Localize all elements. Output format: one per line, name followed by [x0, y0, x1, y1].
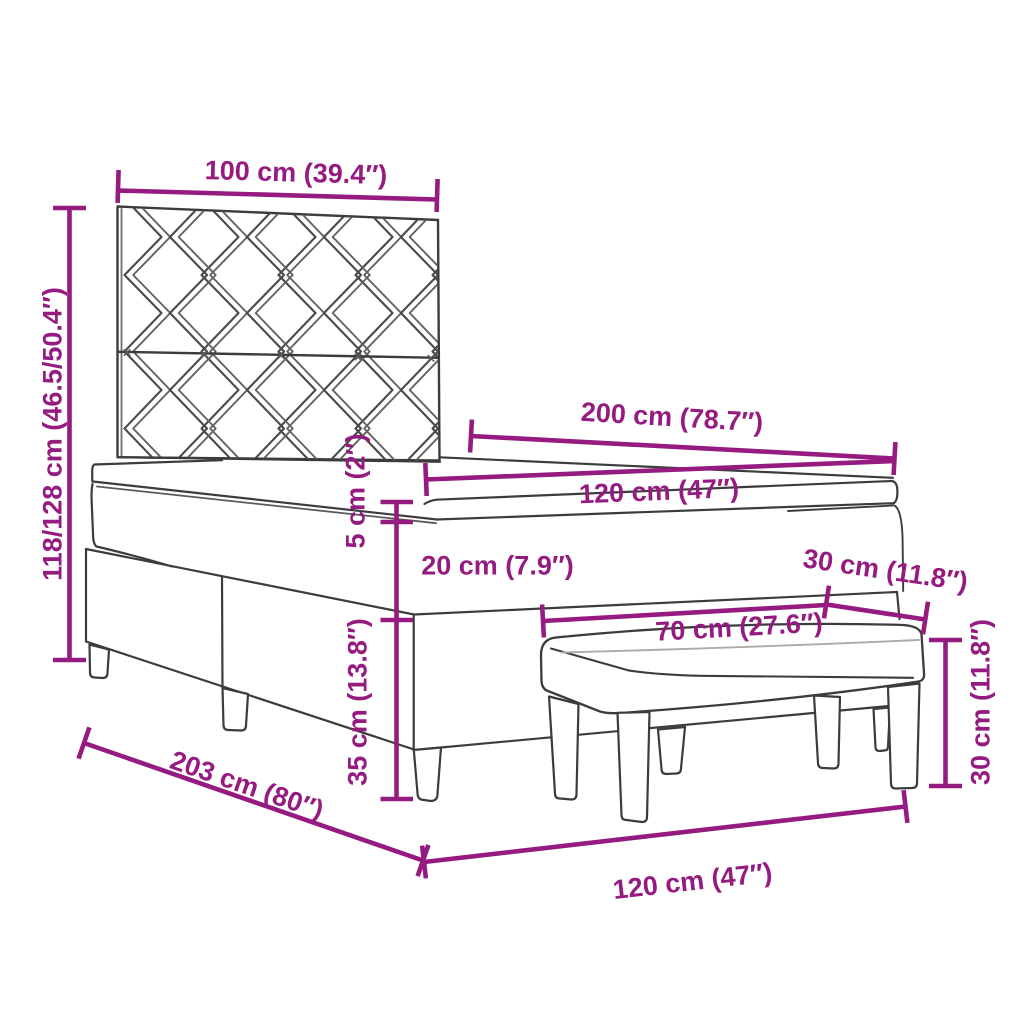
- svg-text:118/128 cm (46.5/50.4″): 118/128 cm (46.5/50.4″): [38, 287, 68, 581]
- svg-text:20 cm (7.9″): 20 cm (7.9″): [421, 551, 574, 581]
- svg-text:5 cm (2″): 5 cm (2″): [341, 434, 371, 549]
- svg-text:100 cm (39.4″): 100 cm (39.4″): [204, 155, 387, 190]
- svg-text:30 cm (11.8″): 30 cm (11.8″): [966, 619, 996, 785]
- svg-text:120 cm (47″): 120 cm (47″): [578, 473, 739, 509]
- svg-text:35 cm (13.8″): 35 cm (13.8″): [343, 618, 373, 786]
